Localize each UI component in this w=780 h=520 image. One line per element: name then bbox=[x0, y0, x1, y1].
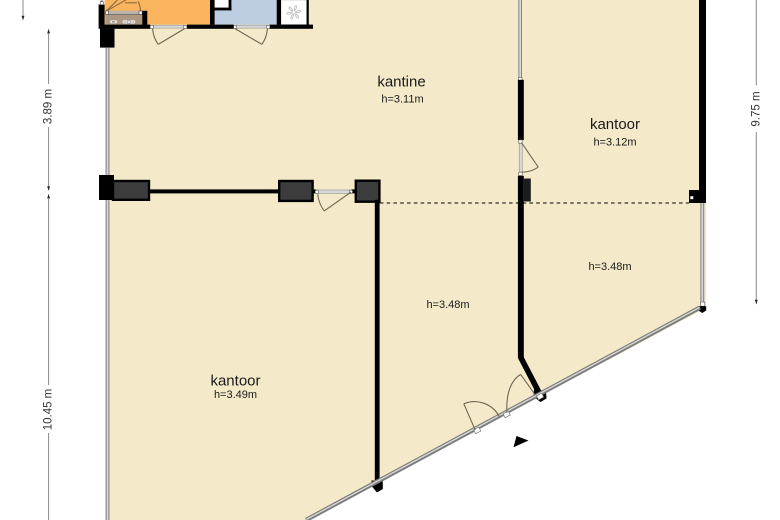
svg-text:h=3.48m: h=3.48m bbox=[426, 299, 469, 311]
svg-text:kantoor: kantoor bbox=[210, 373, 260, 390]
svg-text:h=3.49m: h=3.49m bbox=[214, 389, 257, 401]
svg-text:3.89 m: 3.89 m bbox=[43, 89, 55, 124]
svg-text:9.75 m: 9.75 m bbox=[750, 91, 762, 126]
svg-text:h=3.11m: h=3.11m bbox=[381, 94, 423, 106]
svg-text:h=3.48m: h=3.48m bbox=[588, 261, 631, 273]
svg-text:kantoor: kantoor bbox=[590, 116, 640, 133]
svg-text:10.45 m: 10.45 m bbox=[43, 389, 55, 431]
svg-text:h=3.12m: h=3.12m bbox=[593, 137, 636, 149]
svg-text:kantine: kantine bbox=[377, 74, 425, 91]
